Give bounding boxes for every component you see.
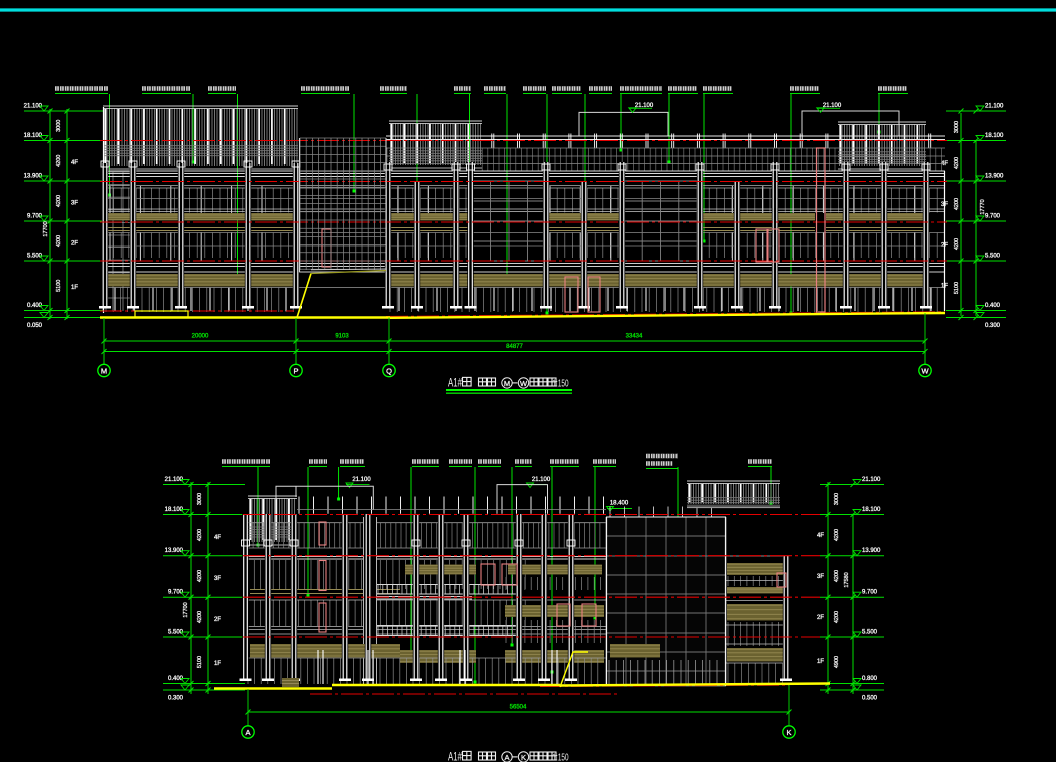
svg-text:4200: 4200	[197, 611, 203, 623]
svg-text:17700: 17700	[183, 602, 189, 617]
svg-text:3F: 3F	[817, 574, 824, 580]
svg-text:3000: 3000	[954, 121, 960, 133]
svg-text:21.100: 21.100	[352, 477, 371, 483]
svg-text:4200: 4200	[56, 235, 62, 247]
svg-text:4200: 4200	[954, 198, 960, 210]
svg-text:33434: 33434	[626, 334, 643, 340]
svg-text:3000: 3000	[197, 493, 203, 505]
svg-text:4200: 4200	[197, 570, 203, 582]
svg-text:M: M	[504, 379, 510, 388]
svg-text:4900: 4900	[834, 656, 840, 668]
svg-text:13.900: 13.900	[24, 174, 43, 180]
svg-text:2F: 2F	[214, 617, 221, 623]
svg-text:A1#: A1#	[448, 378, 462, 390]
svg-text:2F: 2F	[817, 615, 824, 621]
svg-text:4200: 4200	[834, 611, 840, 623]
svg-text:5100: 5100	[56, 280, 62, 292]
svg-text:17700: 17700	[43, 221, 49, 236]
svg-text:A1#: A1#	[448, 752, 462, 762]
svg-text:0.050: 0.050	[27, 323, 43, 329]
svg-text:P: P	[293, 366, 298, 375]
svg-text:9.700: 9.700	[862, 590, 878, 596]
svg-text:21.100: 21.100	[862, 477, 881, 483]
svg-text:21.100: 21.100	[24, 104, 43, 110]
svg-text:18.100: 18.100	[862, 507, 881, 513]
svg-text:4200: 4200	[954, 238, 960, 250]
svg-text:4200: 4200	[834, 529, 840, 541]
svg-text:4200: 4200	[834, 570, 840, 582]
svg-text:1F: 1F	[817, 659, 824, 665]
svg-text:13.900: 13.900	[165, 548, 184, 554]
svg-text:4F: 4F	[71, 160, 78, 166]
svg-text:5100: 5100	[197, 656, 203, 668]
svg-text:Q: Q	[386, 366, 392, 375]
svg-text:13.900: 13.900	[862, 548, 881, 554]
svg-text:17580: 17580	[844, 572, 850, 587]
svg-text:5.500: 5.500	[985, 254, 1001, 260]
svg-text:2F: 2F	[71, 241, 78, 247]
svg-text:4F: 4F	[817, 533, 824, 539]
svg-text:0.400: 0.400	[985, 303, 1001, 309]
svg-text:18.100: 18.100	[165, 507, 184, 513]
svg-text:18.400: 18.400	[610, 501, 629, 507]
svg-text:A: A	[504, 753, 509, 762]
svg-text:4200: 4200	[197, 529, 203, 541]
svg-text:K: K	[786, 728, 791, 737]
svg-text:3000: 3000	[56, 120, 62, 132]
svg-text:3F: 3F	[214, 576, 221, 582]
svg-text:56504: 56504	[510, 705, 527, 711]
svg-text:5.500: 5.500	[862, 630, 878, 636]
svg-text:17770: 17770	[980, 199, 986, 214]
svg-text:18.100: 18.100	[24, 133, 43, 139]
svg-text:K: K	[521, 753, 526, 762]
svg-text:1:150: 1:150	[553, 378, 569, 390]
svg-text:1F: 1F	[214, 661, 221, 667]
svg-text:A: A	[245, 728, 250, 737]
svg-text:21.100: 21.100	[165, 477, 184, 483]
svg-text:3000: 3000	[834, 493, 840, 505]
svg-text:1F: 1F	[71, 285, 78, 291]
svg-text:0.300: 0.300	[168, 696, 184, 702]
svg-text:20000: 20000	[192, 334, 209, 340]
svg-text:M: M	[101, 366, 107, 375]
svg-text:4200: 4200	[954, 157, 960, 169]
svg-text:9.700: 9.700	[985, 214, 1001, 220]
svg-text:84877: 84877	[506, 344, 523, 350]
svg-text:9103: 9103	[335, 334, 349, 340]
svg-text:18.100: 18.100	[985, 133, 1004, 139]
svg-text:4F: 4F	[941, 161, 948, 167]
svg-text:21.100: 21.100	[532, 477, 551, 483]
svg-text:0.800: 0.800	[862, 676, 878, 682]
svg-text:4200: 4200	[56, 155, 62, 167]
svg-text:W: W	[520, 379, 528, 388]
svg-text:5100: 5100	[954, 282, 960, 294]
svg-text:1:150: 1:150	[553, 752, 569, 762]
svg-text:13.900: 13.900	[985, 174, 1004, 180]
svg-text:W: W	[921, 366, 929, 375]
svg-text:0.300: 0.300	[985, 323, 1001, 329]
svg-text:3F: 3F	[71, 201, 78, 207]
svg-text:4F: 4F	[214, 535, 221, 541]
svg-text:21.100: 21.100	[985, 104, 1004, 110]
svg-text:4200: 4200	[56, 195, 62, 207]
svg-text:0.500: 0.500	[862, 696, 878, 702]
